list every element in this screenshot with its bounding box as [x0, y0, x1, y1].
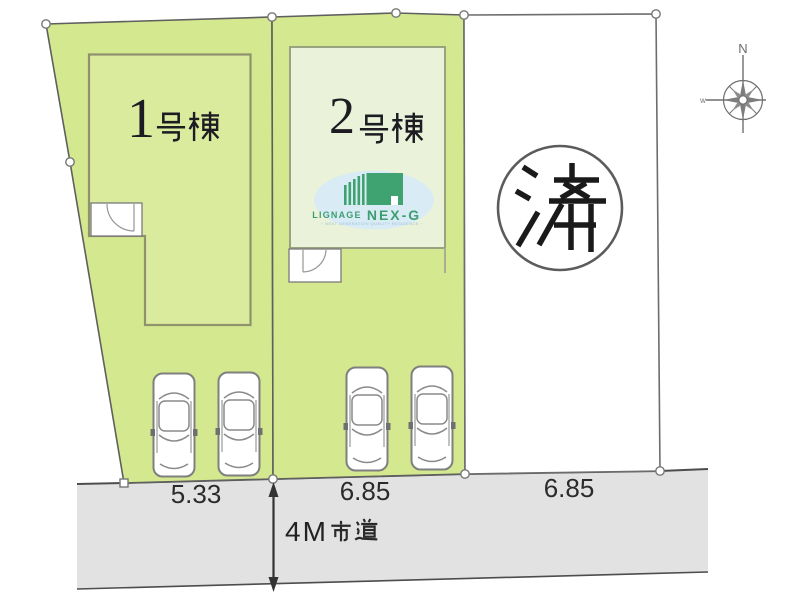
svg-text:~ NEXT GENERATION QUALITY RESI: ~ NEXT GENERATION QUALITY RESIDENCE ~ [321, 221, 423, 226]
svg-text:LIGNAGE: LIGNAGE [312, 210, 361, 220]
svg-text:2: 2 [329, 88, 355, 145]
svg-text:5.33: 5.33 [171, 479, 222, 509]
svg-text:1: 1 [127, 88, 155, 150]
svg-text:6.85: 6.85 [544, 473, 595, 503]
svg-text:N: N [738, 41, 747, 56]
svg-text:w: w [699, 96, 706, 105]
svg-text:4M: 4M [285, 516, 328, 547]
svg-text:6.85: 6.85 [340, 476, 391, 506]
